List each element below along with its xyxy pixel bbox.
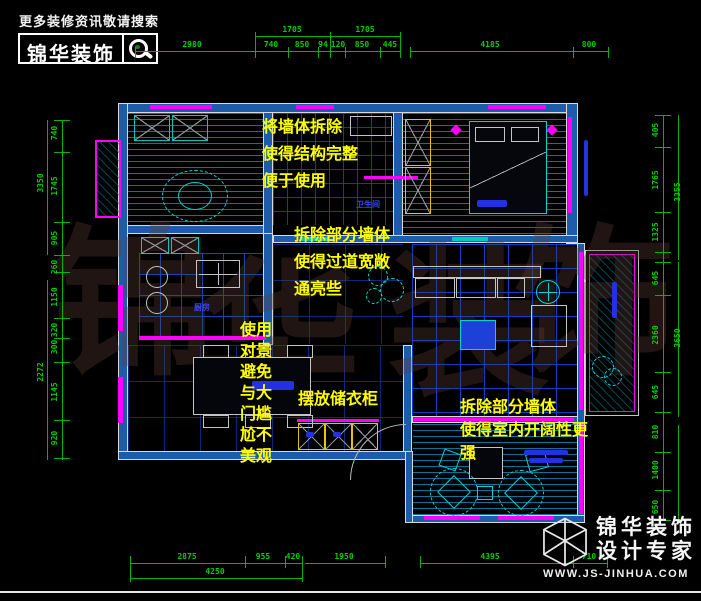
dimension-line	[255, 32, 256, 58]
dimension-line	[655, 115, 671, 116]
dimension-line	[655, 262, 671, 263]
closet-tag	[306, 432, 314, 437]
storage-closet-icon	[352, 423, 378, 450]
note-open-space: 拆除部分墙体 使得室内开阔性更 强	[460, 396, 588, 465]
sofa-seat	[497, 278, 525, 298]
dimension-label: 94	[318, 41, 328, 49]
sofa-seat	[415, 278, 455, 298]
dimension-line	[410, 47, 411, 58]
footer-brand-line2: 设计专家	[596, 540, 696, 564]
balcony-east-label-tag	[612, 282, 617, 318]
note-line: 强	[460, 442, 588, 465]
round-table	[178, 182, 212, 210]
dimension-line	[47, 280, 48, 460]
bay-window-west	[95, 140, 121, 218]
dimension-label: 810	[652, 425, 660, 439]
dimension-line	[54, 420, 70, 421]
pillow-icon	[475, 127, 505, 142]
dimension-label: 445	[383, 41, 397, 49]
dimension-line	[655, 412, 671, 413]
dimension-label: 2360	[652, 325, 660, 344]
dimension-label: 740	[51, 126, 59, 140]
dimension-label: 4250	[205, 568, 224, 576]
master-side-label-tag	[584, 140, 588, 196]
room-label-bathroom: 卫生间	[356, 199, 380, 210]
dimension-label: 1765	[652, 170, 660, 189]
dimension-label: 3650	[674, 328, 682, 347]
window-master-east	[568, 117, 572, 213]
dimension-line	[245, 556, 246, 568]
dimension-label: 420	[286, 553, 300, 561]
note-widen-corridor: 拆除部分墙体 使得过道宽敞 通亮些	[294, 222, 390, 303]
chair-icon	[203, 345, 229, 358]
dimension-line	[655, 147, 671, 148]
cad-floorplan-screenshot: 更多装修资讯敬请搜索 锦华装饰 锦华装饰	[0, 0, 701, 601]
dimension-line	[135, 51, 255, 52]
cabinet-icon	[172, 115, 208, 141]
note-wardrobe: 摆放储衣柜	[298, 386, 378, 413]
note-facing-view: 使用 对景 避免 与大 门尴 尬不 美观	[240, 320, 272, 467]
note-line: 门尴	[240, 404, 272, 425]
dimension-line	[302, 556, 303, 582]
sink-icon	[146, 266, 168, 288]
dimension-line	[54, 152, 70, 153]
bed-label-tag	[477, 200, 507, 207]
dimension-label: 650	[652, 500, 660, 514]
note-line: 摆放储衣柜	[298, 386, 378, 413]
footer-brand-line1: 锦华装饰	[596, 516, 696, 540]
dimension-line	[54, 222, 70, 223]
dimension-label: 1325	[652, 222, 660, 241]
dimension-line	[420, 556, 421, 568]
note-line: 美观	[240, 446, 272, 467]
dimension-label: 645	[652, 385, 660, 399]
window-north-1	[150, 105, 212, 109]
brand-logo: 锦华装饰	[18, 33, 158, 64]
brand-logo-text: 锦华装饰	[20, 35, 122, 62]
window-west-mid	[118, 285, 123, 331]
cube-icon	[540, 516, 590, 568]
bottom-rule	[0, 591, 701, 593]
dimension-label: 260	[51, 260, 59, 274]
dimension-line	[135, 47, 136, 58]
dimension-line	[385, 556, 386, 568]
dimension-label: 740	[264, 41, 278, 49]
sofa-seat	[456, 278, 496, 298]
dimension-line	[54, 318, 70, 319]
dimension-line	[400, 32, 401, 58]
dimension-label: 405	[652, 123, 660, 137]
dimension-line	[62, 120, 63, 460]
dimension-line	[655, 372, 671, 373]
dimension-label: 645	[652, 271, 660, 285]
header-slogan: 更多装修资讯敬请搜索	[19, 11, 159, 30]
dimension-line	[255, 36, 330, 37]
dimension-line	[54, 458, 70, 459]
dimension-label: 2875	[177, 553, 196, 561]
dimension-line	[655, 252, 671, 253]
window-west-low	[118, 377, 123, 423]
note-line: 便于使用	[262, 168, 358, 195]
dimension-line	[130, 578, 302, 579]
dimension-label: 2980	[182, 41, 201, 49]
note-line: 使用	[240, 320, 272, 341]
note-line: 与大	[240, 383, 272, 404]
note-line: 尬不	[240, 425, 272, 446]
cabinet-icon	[134, 115, 170, 141]
dimension-line	[655, 490, 671, 491]
balcony-east-floor	[589, 254, 635, 412]
dimension-label: 320	[51, 323, 59, 337]
dimension-line	[255, 51, 400, 52]
dimension-label: 3355	[674, 182, 682, 201]
dimension-label: 800	[582, 41, 596, 49]
armchair	[531, 305, 567, 347]
dimension-label: 1400	[652, 460, 660, 479]
magnifier-icon	[122, 35, 156, 62]
dimension-label: 1950	[334, 553, 353, 561]
kitchen-cabinet-icon	[171, 237, 199, 254]
note-line: 使得结构完整	[262, 141, 358, 168]
window-north-3	[488, 105, 546, 109]
note-line: 使得过道宽敞	[294, 249, 390, 276]
dimension-label: 905	[51, 231, 59, 245]
dimension-line	[655, 212, 671, 213]
pillow-icon	[511, 127, 539, 142]
window-north-2	[296, 105, 334, 109]
dimension-label: 850	[295, 41, 309, 49]
wall-step-south	[405, 451, 413, 523]
ceiling-fan-icon	[536, 280, 560, 304]
dimension-line	[330, 36, 400, 37]
dimension-label: 3350	[37, 173, 45, 192]
note-remove-wall: 将墙体拆除 使得结构完整 便于使用	[262, 114, 358, 195]
dimension-label: 4185	[480, 41, 499, 49]
dimension-line	[608, 47, 609, 58]
dimension-line	[305, 563, 385, 564]
chair-icon	[203, 415, 229, 428]
dimension-line	[54, 255, 70, 256]
dimension-line	[130, 556, 131, 582]
wall-bedroom2-south	[127, 225, 273, 234]
note-line: 对景	[240, 341, 272, 362]
plant-icon	[604, 368, 622, 386]
chair-icon	[287, 345, 313, 358]
wardrobe-icon	[405, 167, 431, 214]
blanket-fold	[470, 152, 546, 188]
dimension-line	[54, 120, 70, 121]
dimension-line	[678, 425, 679, 520]
window-south-1	[424, 516, 480, 520]
dimension-label: 1705	[355, 26, 374, 34]
dimension-label: 850	[355, 41, 369, 49]
dimension-line	[47, 120, 48, 255]
note-line: 拆除部分墙体	[294, 222, 390, 249]
dimension-line	[380, 47, 381, 58]
note-line: 使得室内开阔性更	[460, 419, 588, 442]
dimension-line	[655, 452, 671, 453]
dimension-line	[663, 115, 664, 520]
window-living-east	[579, 252, 583, 410]
dimension-label: 4395	[480, 553, 499, 561]
footer-website: WWW.JS-JINHUA.COM	[543, 568, 689, 580]
note-line: 避免	[240, 362, 272, 383]
footer-brand: 锦华装饰 设计专家	[540, 516, 696, 568]
coffee-table	[460, 320, 496, 350]
dimension-line	[54, 362, 70, 363]
closet-tag	[333, 432, 341, 437]
door-threshold-2	[452, 237, 488, 241]
sink-icon	[146, 292, 168, 314]
dimension-line	[655, 295, 671, 296]
note-line: 拆除部分墙体	[460, 396, 588, 419]
sofa-back	[413, 266, 541, 278]
dimension-label: 1145	[51, 382, 59, 401]
dimension-label: 955	[256, 553, 270, 561]
dimension-label: 1150	[51, 287, 59, 306]
kitchen-cabinet-icon	[141, 237, 169, 254]
note-line: 通亮些	[294, 276, 390, 303]
dimension-line	[573, 47, 574, 58]
dimension-line	[288, 47, 289, 58]
dimension-label: 2272	[37, 362, 45, 381]
stove-icon	[196, 260, 240, 288]
dimension-label: 1745	[51, 176, 59, 195]
dimension-label: 1705	[282, 26, 301, 34]
dimension-label: 300	[51, 340, 59, 354]
dimension-line	[573, 51, 608, 52]
wardrobe-icon	[405, 119, 431, 166]
note-line: 将墙体拆除	[262, 114, 358, 141]
dimension-label: 920	[51, 431, 59, 445]
dimension-line	[410, 51, 573, 52]
dimension-label: 120	[331, 41, 345, 49]
dimension-line	[130, 563, 302, 564]
room-label-kitchen: 厨房	[194, 302, 210, 313]
side-stool	[477, 486, 493, 500]
